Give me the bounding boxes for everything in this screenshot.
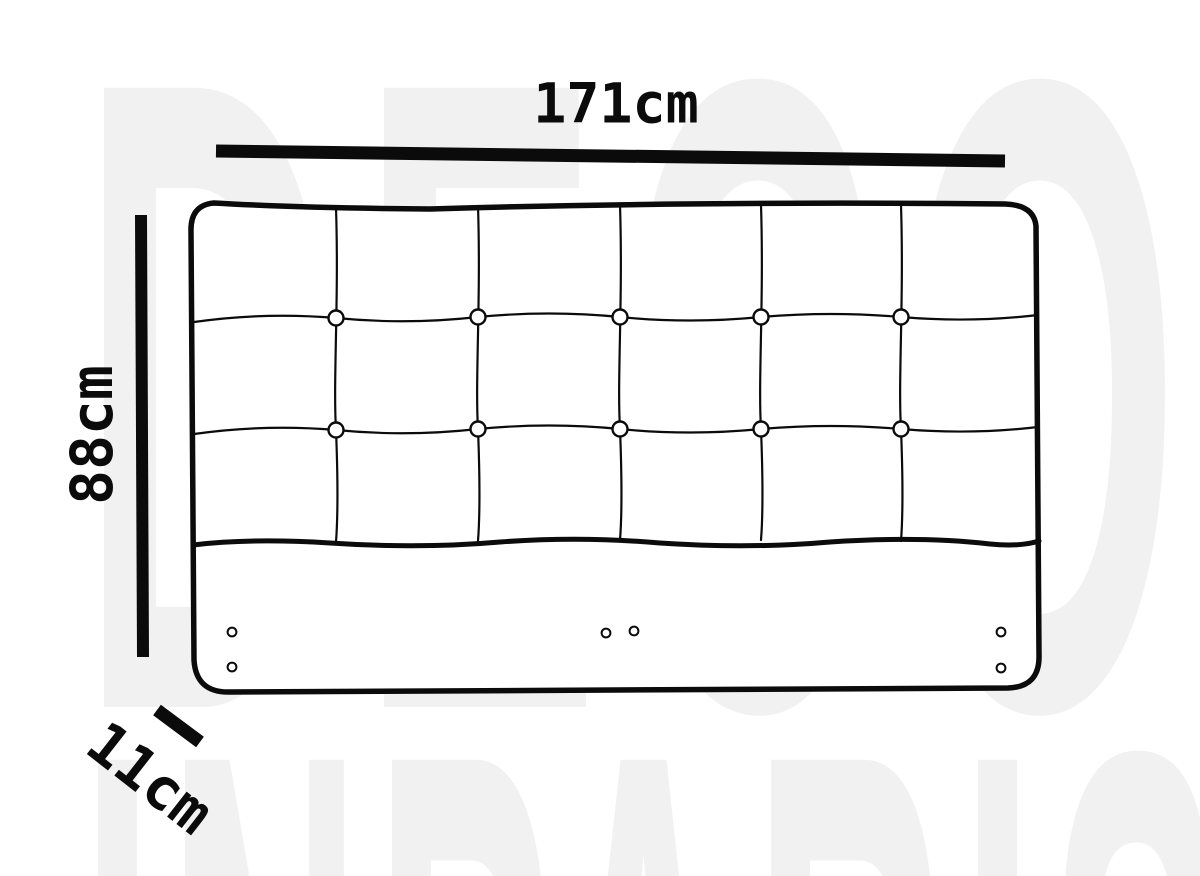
height-dimension-label: 88cm	[63, 365, 121, 505]
height-dimension-line	[141, 215, 143, 657]
headboard-outline	[191, 203, 1039, 692]
depth-dimension-line	[157, 710, 200, 742]
width-dimension-label: 171cm	[533, 77, 699, 132]
width-dimension-line	[216, 151, 1005, 161]
diagram-canvas: DECO INPARIS	[0, 0, 1200, 876]
